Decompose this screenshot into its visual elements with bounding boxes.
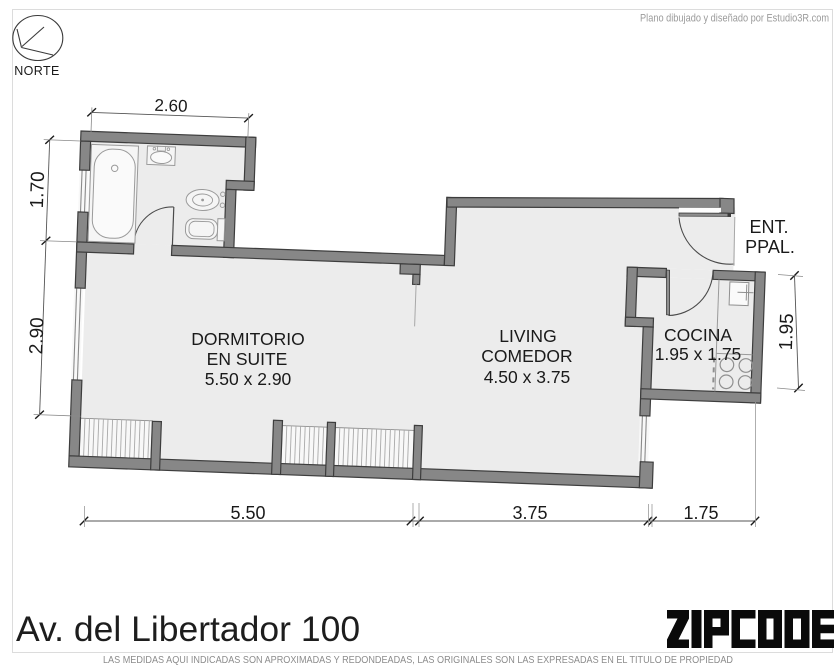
- svg-text:ENT.: ENT.: [749, 217, 788, 237]
- svg-text:LAS MEDIDAS AQUI INDICADAS SON: LAS MEDIDAS AQUI INDICADAS SON APROXIMAD…: [103, 655, 733, 666]
- svg-text:PPAL.: PPAL.: [745, 237, 795, 257]
- svg-text:COCINA: COCINA: [664, 325, 732, 345]
- svg-text:5.50 x 2.90: 5.50 x 2.90: [205, 369, 292, 389]
- svg-text:1.95: 1.95: [776, 313, 798, 351]
- svg-text:1.95 x 1.75: 1.95 x 1.75: [655, 344, 742, 364]
- svg-text:NORTE: NORTE: [14, 64, 60, 78]
- svg-text:1.75: 1.75: [683, 503, 718, 523]
- svg-text:2.60: 2.60: [154, 96, 188, 116]
- svg-text:DORMITORIO: DORMITORIO: [191, 329, 304, 349]
- svg-text:1.70: 1.70: [27, 171, 49, 209]
- svg-text:5.50: 5.50: [230, 503, 265, 523]
- svg-text:EN SUITE: EN SUITE: [207, 349, 288, 369]
- svg-text:2.90: 2.90: [26, 317, 48, 355]
- svg-text:3.75: 3.75: [512, 503, 547, 523]
- svg-text:Av. del Libertador 100: Av. del Libertador 100: [16, 609, 360, 649]
- svg-text:Plano dibujado y diseñado por: Plano dibujado y diseñado por Estudio3R.…: [640, 13, 829, 25]
- svg-text:4.50 x 3.75: 4.50 x 3.75: [484, 367, 571, 387]
- svg-text:LIVING: LIVING: [499, 326, 556, 346]
- svg-text:COMEDOR: COMEDOR: [481, 346, 572, 366]
